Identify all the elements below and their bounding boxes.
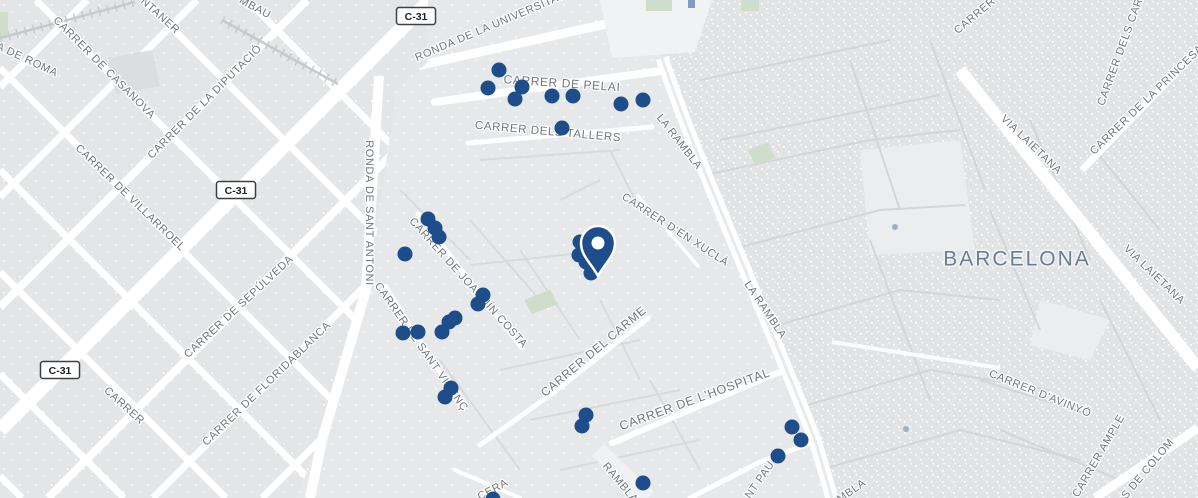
location-dot-marker[interactable] [555, 121, 570, 136]
street-label: RONDA DE SANT ANTONI [363, 140, 375, 285]
location-dot-marker[interactable] [545, 89, 560, 104]
location-dot-marker[interactable] [411, 325, 426, 340]
location-dot-marker[interactable] [396, 326, 411, 341]
location-dot-marker[interactable] [435, 325, 450, 340]
svg-text:C-31: C-31 [49, 365, 72, 377]
location-dot-marker[interactable] [398, 247, 413, 262]
location-dot-marker[interactable] [492, 63, 507, 78]
location-dot-marker[interactable] [636, 93, 651, 108]
svg-text:C-31: C-31 [405, 11, 428, 23]
map-canvas[interactable]: A DE ROMACARRER DE CASANOVANTANERMBAUCAR… [0, 0, 1198, 498]
poi-dot [892, 224, 898, 230]
location-dot-marker[interactable] [471, 297, 486, 312]
city-label-barcelona: BARCELONA [943, 248, 1091, 271]
location-dot-marker[interactable] [481, 81, 496, 96]
location-dot-marker[interactable] [794, 433, 809, 448]
pin-hole [592, 237, 605, 250]
location-dot-marker[interactable] [566, 89, 581, 104]
location-dot-marker[interactable] [785, 420, 800, 435]
location-dot-marker[interactable] [636, 476, 651, 491]
location-dot-marker[interactable] [614, 97, 629, 112]
route-badge: C-31 [217, 182, 256, 199]
location-dot-marker[interactable] [508, 92, 523, 107]
map-svg: A DE ROMACARRER DE CASANOVANTANERMBAUCAR… [0, 0, 1198, 498]
location-dot-marker[interactable] [438, 390, 453, 405]
location-dot-marker[interactable] [432, 230, 447, 245]
svg-text:C-31: C-31 [225, 185, 248, 197]
route-badge: C-31 [41, 362, 80, 379]
poi-dot [903, 426, 909, 432]
location-dot-marker[interactable] [771, 449, 786, 464]
route-badge: C-31 [397, 8, 436, 25]
location-dot-marker[interactable] [575, 419, 590, 434]
